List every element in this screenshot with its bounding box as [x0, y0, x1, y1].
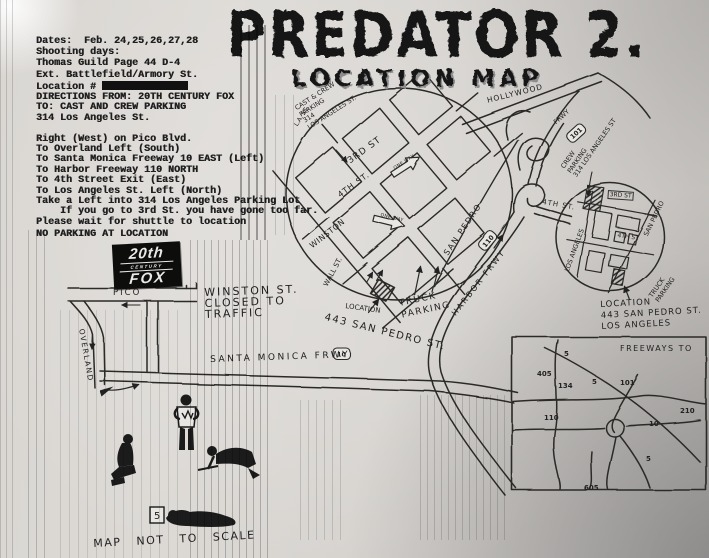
header-block: Dates: Feb. 24,25,26,27,28 Shooting days…: [36, 36, 198, 93]
directions-block: DIRECTIONS FROM: 20TH CENTURY FOX TO: CA…: [36, 93, 318, 228]
ext-line: Ext. Battlefield/Armory St.: [36, 70, 198, 81]
santa-monica-freeway: [100, 371, 518, 403]
inset-freeway-number: 10: [649, 420, 659, 428]
figure-lying-doodle: 5: [150, 507, 236, 527]
figure-standing-doodle: [175, 395, 198, 451]
figure-crawling-doodle: [198, 446, 260, 479]
directions-line: Please wait for shuttle to location: [36, 218, 318, 228]
inset-freeway-number: 405: [537, 370, 552, 378]
inset-freeway-number: 110: [544, 414, 559, 422]
sign-number: 5: [154, 511, 160, 522]
inset-title: FREEWAYS TO: [620, 344, 693, 353]
inset-freeway-number: 101: [620, 379, 635, 387]
figure-kneeling-doodle: [111, 434, 136, 486]
note-winston-closed: WINSTON ST. CLOSED TO TRAFFIC: [204, 284, 299, 320]
shooting-days-line: Shooting days:: [36, 47, 198, 58]
inset-freeway-number: 134: [558, 382, 573, 390]
inset-freeway-number: 5: [646, 455, 651, 463]
no-parking-note: NO PARKING AT LOCATION: [36, 229, 168, 240]
right-circle-3rd: 3RD ST: [607, 190, 634, 201]
redaction-bar: [102, 81, 188, 90]
dates-line: Dates: Feb. 24,25,26,27,28: [36, 36, 198, 47]
inset-freeway-number: 210: [680, 407, 695, 415]
pico-label: PICO: [113, 288, 141, 298]
inset-freeway-number: 5: [592, 378, 597, 386]
thomas-guide-line: Thomas Guild Page 44 D-4: [36, 58, 198, 69]
scanned-location-map: 110 101 10 5: [0, 0, 709, 558]
freeway-inset: [512, 337, 706, 490]
inset-freeway-number: 605: [584, 484, 599, 492]
movie-title: PREDATOR 2.: [227, 0, 647, 72]
harbor-freeway: [428, 90, 580, 495]
fox-logo: 20th CENTURY FOX: [112, 241, 182, 289]
note-location-right: LOCATION 443 SAN PEDRO ST. LOS ANGELES: [600, 295, 703, 333]
inset-freeway-number: 5: [564, 350, 569, 358]
directions-line: 314 Los Angeles St.: [36, 114, 318, 124]
fox-logo-fox: FOX: [113, 270, 182, 288]
title-block: PREDATOR 2. LOCATION MAP LOCATION MAP: [225, 0, 709, 100]
